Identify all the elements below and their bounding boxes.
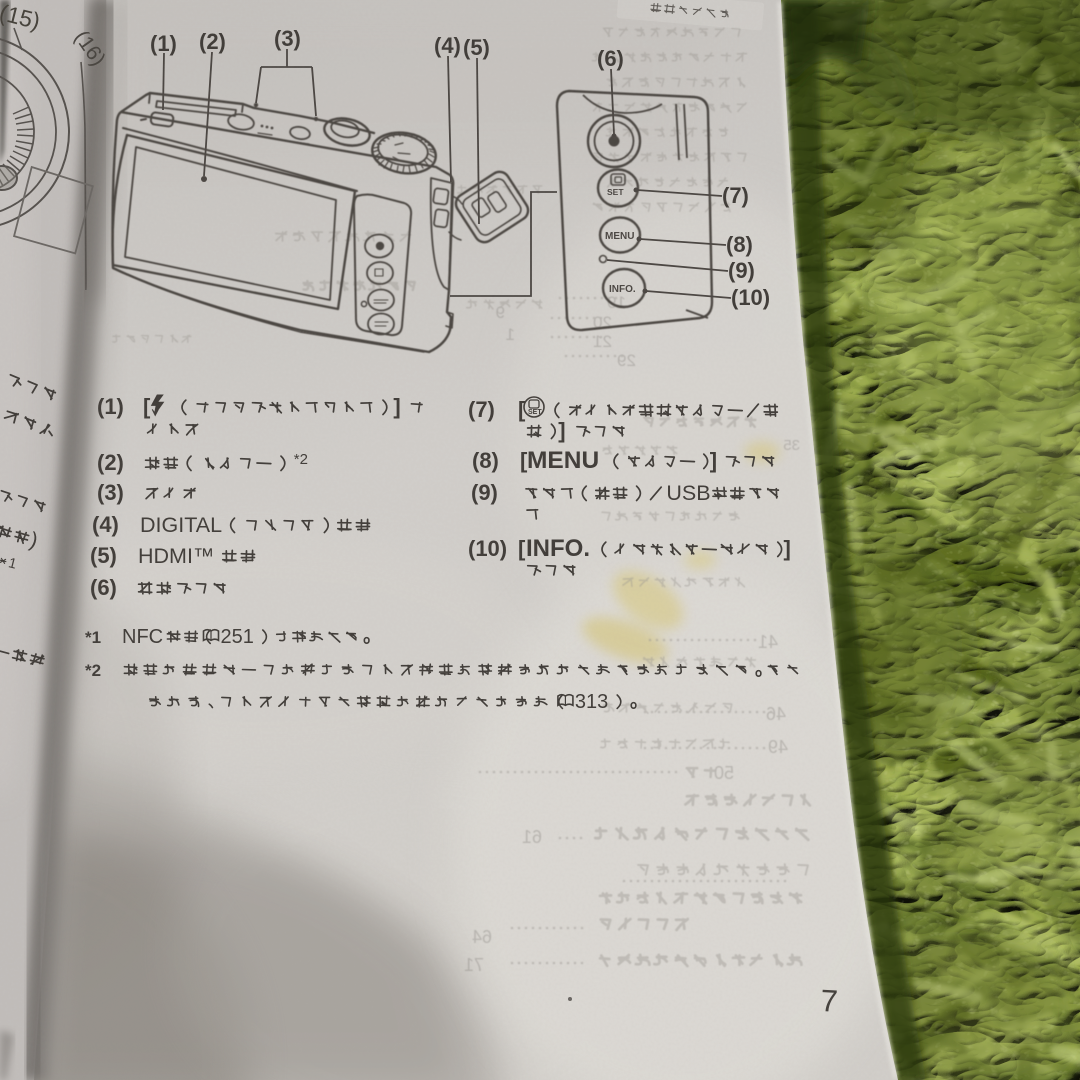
svg-text:7: 7 bbox=[820, 983, 839, 1019]
